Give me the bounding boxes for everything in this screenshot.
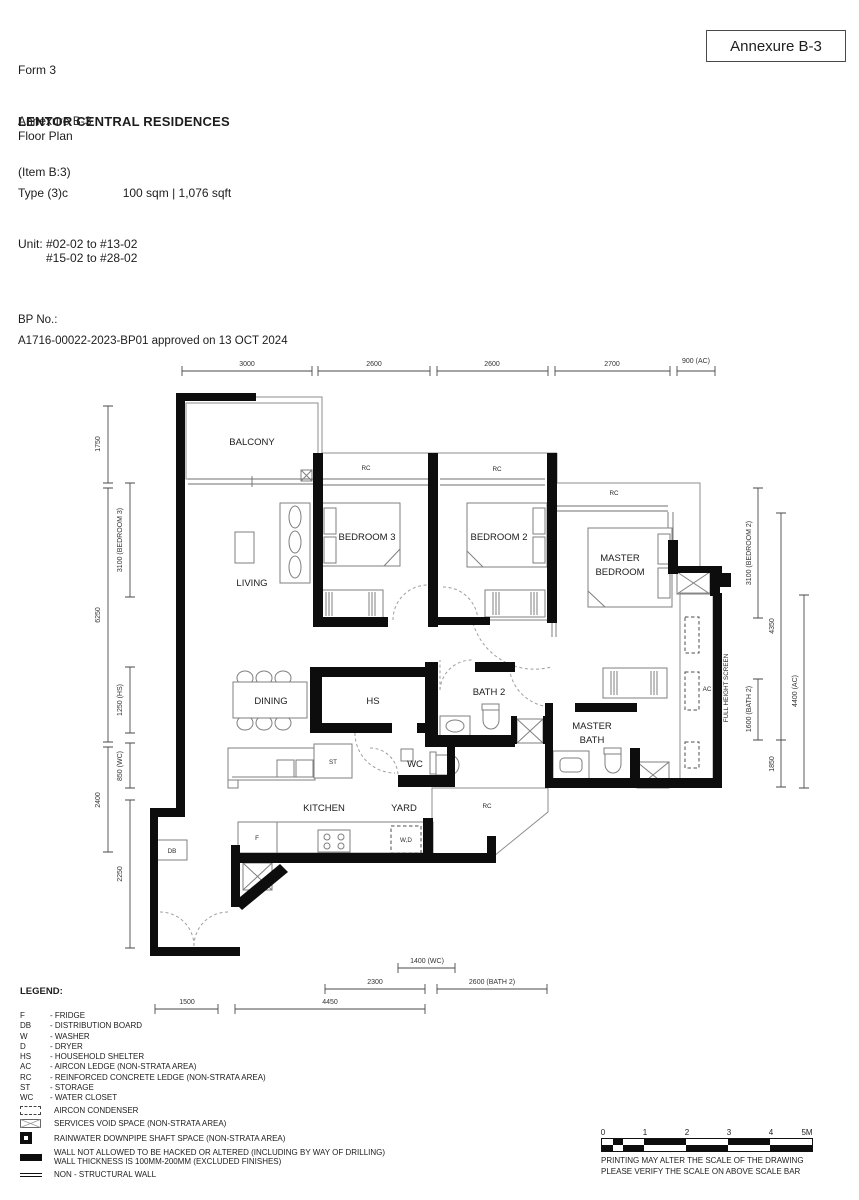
door-swings bbox=[160, 585, 553, 946]
legend-desc: - AIRCON LEDGE (NON-STRATA AREA) bbox=[50, 1062, 196, 1072]
rainwater-shaft-symbol bbox=[20, 1132, 32, 1144]
label-hs: HS bbox=[366, 696, 379, 707]
label-master-2: BEDROOM bbox=[595, 567, 644, 578]
scale-bar: 0 1 2 3 4 5M PRINTING MAY ALTER THE SCAL… bbox=[601, 1128, 813, 1177]
legend-item: RC- REINFORCED CONCRETE LEDGE (NON-STRAT… bbox=[20, 1073, 266, 1083]
symbol-legend: AIRCON CONDENSER SERVICES VOID SPACE (NO… bbox=[20, 1106, 440, 1183]
wardrobe-3 bbox=[318, 590, 383, 618]
symbol-label: AIRCON CONDENSER bbox=[54, 1106, 138, 1115]
symbol-row-aircon: AIRCON CONDENSER bbox=[20, 1106, 440, 1115]
symbol-label: NON - STRUCTURAL WALL bbox=[54, 1170, 156, 1179]
dim-left-1750: 1750 bbox=[95, 436, 102, 452]
legend-desc: - WATER CLOSET bbox=[50, 1093, 117, 1103]
legend-abbr: HS bbox=[20, 1052, 50, 1062]
dim-left-2250: 2250 bbox=[117, 866, 124, 882]
mbath-toilet bbox=[605, 754, 621, 773]
legend-item: DB- DISTRIBUTION BOARD bbox=[20, 1021, 266, 1031]
scale-tick: 2 bbox=[685, 1128, 689, 1137]
legend-abbr: D bbox=[20, 1042, 50, 1052]
label-mbath-2: BATH bbox=[580, 735, 605, 746]
legend-desc: - DISTRIBUTION BOARD bbox=[50, 1021, 142, 1031]
legend-title: LEGEND: bbox=[20, 986, 266, 997]
scale-bar-notes: PRINTING MAY ALTER THE SCALE OF THE DRAW… bbox=[601, 1155, 813, 1177]
dim-bottom-2600: 2600 (BATH 2) bbox=[469, 979, 515, 986]
legend-abbr: W bbox=[20, 1032, 50, 1042]
dim-right-1600: 1600 (BATH 2) bbox=[746, 686, 753, 732]
scale-tick: 3 bbox=[727, 1128, 731, 1137]
bath2-sink bbox=[440, 716, 470, 737]
label-balcony: BALCONY bbox=[229, 437, 275, 448]
dim-left-1250: 1250 (HS) bbox=[117, 684, 124, 716]
dim-top-3: 2600 bbox=[484, 361, 500, 368]
scale-note-2: PLEASE VERIFY THE SCALE ON ABOVE SCALE B… bbox=[601, 1166, 813, 1177]
label-rc-4: RC bbox=[482, 803, 492, 810]
legend-item: WC- WATER CLOSET bbox=[20, 1093, 266, 1103]
legend-item: F- FRIDGE bbox=[20, 1011, 266, 1021]
dim-top-4: 2700 bbox=[604, 361, 620, 368]
annotation-labels: RC RC RC RC AC ST DB F W,D FULL HEIGHT S… bbox=[168, 465, 730, 855]
services-void-symbol bbox=[20, 1119, 41, 1128]
legend-abbr: ST bbox=[20, 1083, 50, 1093]
label-fridge: F bbox=[255, 835, 259, 842]
label-bath2: BATH 2 bbox=[473, 687, 506, 698]
label-st: ST bbox=[329, 759, 337, 766]
side-table bbox=[235, 532, 254, 563]
label-ac: AC bbox=[703, 686, 712, 693]
dim-right-4400: 4400 (AC) bbox=[792, 675, 799, 707]
symbol-label-2: WALL THICKNESS IS 100MM-200MM (EXCLUDED … bbox=[54, 1157, 385, 1166]
legend-abbr: F bbox=[20, 1011, 50, 1021]
label-rc-3: RC bbox=[609, 490, 619, 497]
symbol-row-rainwater: RAINWATER DOWNPIPE SHAFT SPACE (NON-STRA… bbox=[20, 1132, 440, 1144]
dim-bottom-2300: 2300 bbox=[367, 979, 383, 986]
dim-left-850: 850 (WC) bbox=[117, 751, 124, 781]
legend-desc: - FRIDGE bbox=[50, 1011, 85, 1021]
mbath-sink bbox=[553, 751, 589, 779]
symbol-label: SERVICES VOID SPACE (NON-STRATA AREA) bbox=[54, 1119, 226, 1128]
scale-tick: 0 bbox=[601, 1128, 605, 1137]
bath2-toilet bbox=[483, 710, 499, 729]
non-structural-wall-symbol bbox=[20, 1173, 42, 1177]
dim-right-1850: 1850 bbox=[769, 756, 776, 772]
kitchen-counter-top bbox=[228, 748, 315, 780]
label-bedroom2: BEDROOM 2 bbox=[470, 532, 527, 543]
symbol-label: WALL NOT ALLOWED TO BE HACKED OR ALTERED… bbox=[54, 1148, 385, 1157]
legend-abbr: DB bbox=[20, 1021, 50, 1031]
scale-bar-graphic bbox=[601, 1138, 813, 1152]
dim-left-6250: 6250 bbox=[95, 607, 102, 623]
aircon-condenser-symbol bbox=[20, 1106, 41, 1115]
legend-item: AC- AIRCON LEDGE (NON-STRATA AREA) bbox=[20, 1062, 266, 1072]
label-rc-2: RC bbox=[492, 466, 502, 473]
label-bedroom3: BEDROOM 3 bbox=[338, 532, 395, 543]
legend-item: HS- HOUSEHOLD SHELTER bbox=[20, 1052, 266, 1062]
scale-tick: 1 bbox=[643, 1128, 647, 1137]
label-kitchen: KITCHEN bbox=[303, 803, 345, 814]
legend-item: W- WASHER bbox=[20, 1032, 266, 1042]
symbol-row-non-structural: NON - STRUCTURAL WALL bbox=[20, 1170, 440, 1179]
label-wc: WC bbox=[407, 759, 423, 770]
label-living: LIVING bbox=[236, 578, 267, 589]
dim-left-3100: 3100 (BEDROOM 3) bbox=[117, 508, 124, 572]
label-rc-1: RC bbox=[361, 465, 371, 472]
legend: LEGEND: F- FRIDGE DB- DISTRIBUTION BOARD… bbox=[20, 986, 266, 1104]
dimension-labels: 3000 2600 2600 2700 900 (AC) 1750 6250 2… bbox=[95, 358, 799, 1006]
legend-item: D- DRYER bbox=[20, 1042, 266, 1052]
label-washer-dryer: W,D bbox=[400, 837, 412, 844]
floor-plan-page: Form 3 Annexure B-3 (Item B:3) Annexure … bbox=[0, 0, 859, 1200]
label-yard: YARD bbox=[391, 803, 417, 814]
label-db: DB bbox=[168, 848, 177, 855]
structural-wall-symbol bbox=[20, 1154, 42, 1161]
legend-desc: - DRYER bbox=[50, 1042, 83, 1052]
legend-desc: - WASHER bbox=[50, 1032, 90, 1042]
legend-abbr: AC bbox=[20, 1062, 50, 1072]
scale-note-1: PRINTING MAY ALTER THE SCALE OF THE DRAW… bbox=[601, 1155, 813, 1166]
tv-console bbox=[280, 503, 310, 583]
dim-right-3100: 3100 (BEDROOM 2) bbox=[746, 521, 753, 585]
scale-tick: 4 bbox=[769, 1128, 773, 1137]
legend-abbr: RC bbox=[20, 1073, 50, 1083]
legend-item: ST- STORAGE bbox=[20, 1083, 266, 1093]
legend-abbr: WC bbox=[20, 1093, 50, 1103]
dim-top-1: 3000 bbox=[239, 361, 255, 368]
dim-top-5: 900 (AC) bbox=[682, 358, 710, 365]
scale-bar-ticks: 0 1 2 3 4 5M bbox=[601, 1128, 813, 1138]
dim-left-2400: 2400 bbox=[95, 792, 102, 808]
wardrobe-2 bbox=[485, 590, 545, 617]
legend-desc: - STORAGE bbox=[50, 1083, 94, 1093]
scale-tick: 5M bbox=[801, 1128, 812, 1137]
dim-right-4350: 4350 bbox=[769, 618, 776, 634]
label-full-height-screen: FULL HEIGHT SCREEN bbox=[723, 653, 730, 722]
dim-bottom-4450: 4450 bbox=[322, 999, 338, 1006]
aircon-condensers bbox=[685, 617, 699, 768]
dim-bottom-1400: 1400 (WC) bbox=[410, 958, 444, 965]
label-master-1: MASTER bbox=[600, 553, 640, 564]
legend-desc: - HOUSEHOLD SHELTER bbox=[50, 1052, 144, 1062]
label-mbath-1: MASTER bbox=[572, 721, 612, 732]
dim-top-2: 2600 bbox=[366, 361, 382, 368]
label-dining: DINING bbox=[254, 696, 287, 707]
symbol-row-services-void: SERVICES VOID SPACE (NON-STRATA AREA) bbox=[20, 1119, 440, 1128]
legend-desc: - REINFORCED CONCRETE LEDGE (NON-STRATA … bbox=[50, 1073, 266, 1083]
symbol-row-wall: WALL NOT ALLOWED TO BE HACKED OR ALTERED… bbox=[20, 1148, 440, 1166]
symbol-label: RAINWATER DOWNPIPE SHAFT SPACE (NON-STRA… bbox=[54, 1134, 285, 1143]
